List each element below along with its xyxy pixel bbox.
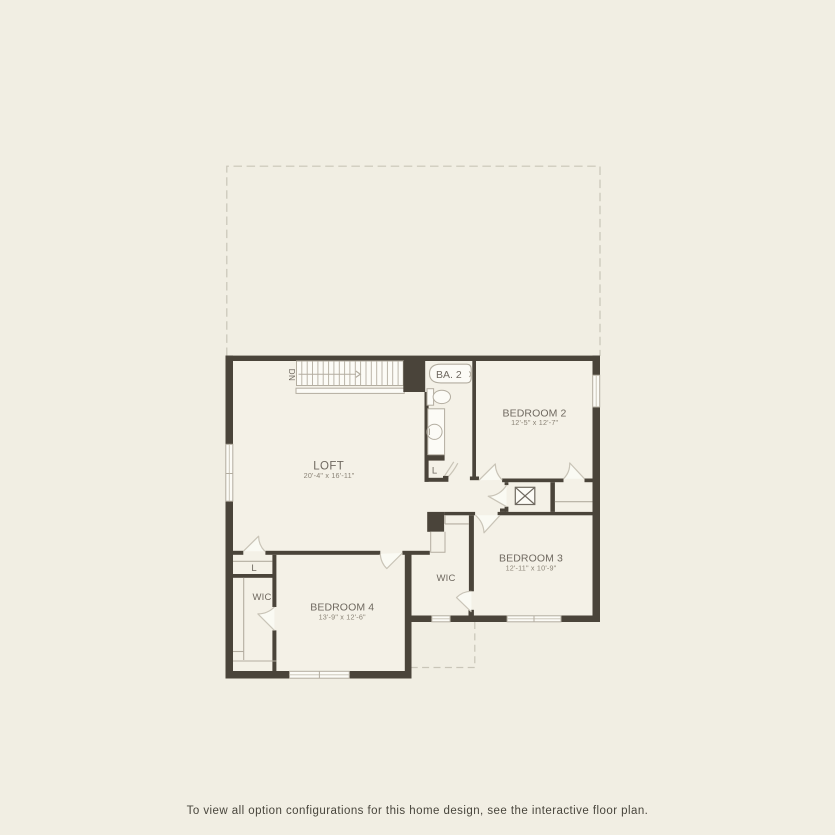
svg-text:WIC: WIC [436, 573, 455, 584]
svg-text:DN: DN [287, 369, 296, 382]
svg-text:20'-4" x 16'-11": 20'-4" x 16'-11" [304, 471, 355, 480]
svg-text:To view all option configurati: To view all option configurations for th… [187, 805, 649, 817]
svg-text:L: L [251, 563, 256, 574]
svg-text:13'-9" x 12'-6": 13'-9" x 12'-6" [319, 613, 366, 622]
svg-text:BA. 2: BA. 2 [436, 369, 462, 381]
svg-text:WIC: WIC [252, 592, 271, 603]
svg-text:12'-11" x 10'-9": 12'-11" x 10'-9" [506, 564, 557, 573]
svg-text:BEDROOM 4: BEDROOM 4 [310, 602, 374, 614]
svg-text:L: L [432, 466, 437, 477]
svg-text:12'-5" x 12'-7": 12'-5" x 12'-7" [511, 418, 558, 427]
svg-text:BEDROOM 3: BEDROOM 3 [499, 552, 563, 564]
